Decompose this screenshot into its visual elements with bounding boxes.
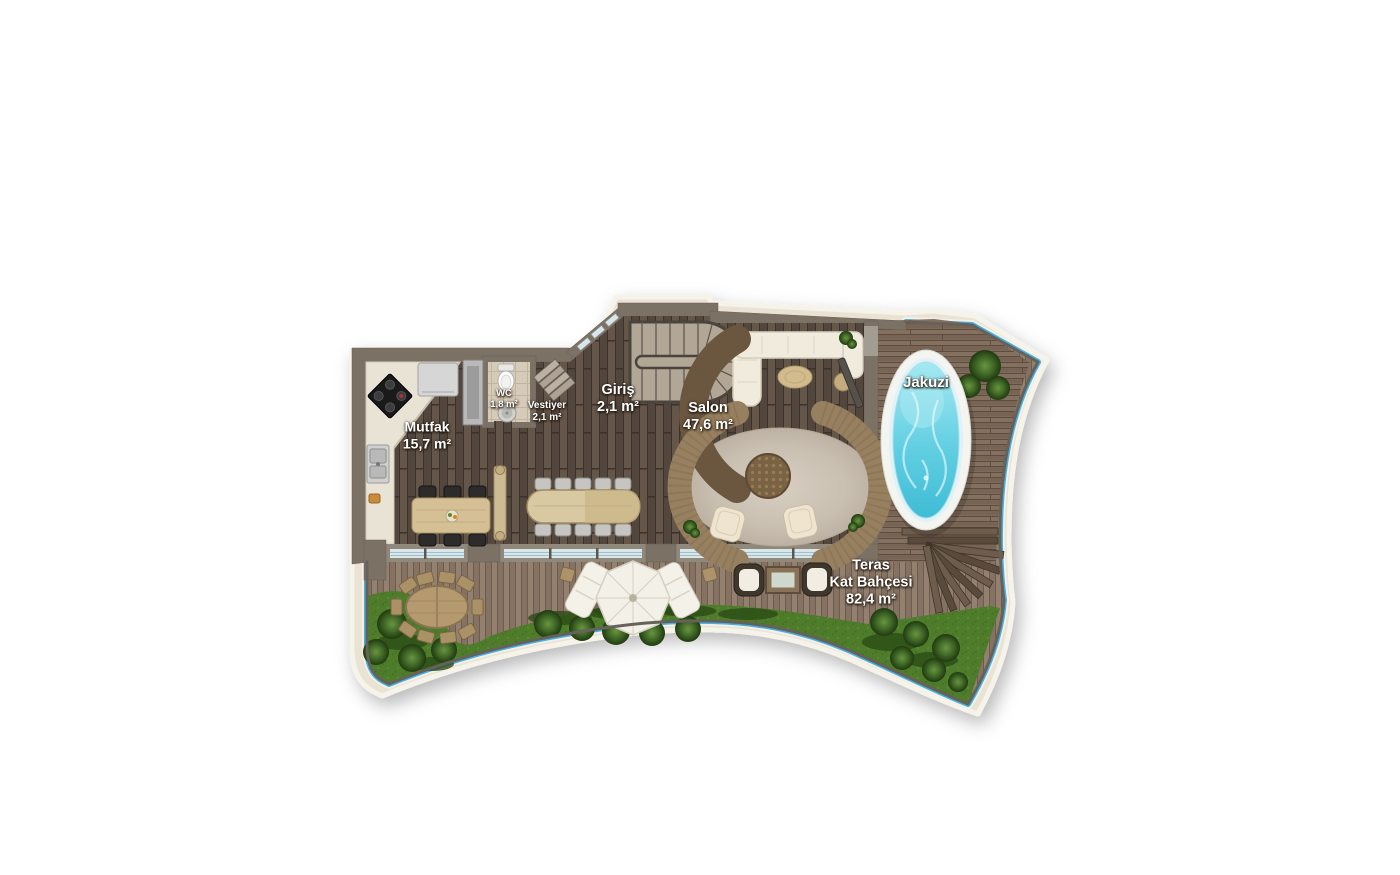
terrace-door-recess	[864, 326, 878, 356]
room-name: Mutfak	[403, 418, 451, 435]
room-label-teras: Teras Kat Bahçesi 82,4 m²	[829, 557, 912, 608]
room-area: 2,1 m²	[528, 412, 566, 424]
room-label-wc: WC 1,8 m²	[490, 388, 517, 410]
kitchen-sink	[367, 445, 389, 483]
room-name: WC	[490, 388, 517, 399]
toilet-tank	[498, 364, 514, 371]
center-ottoman	[746, 454, 790, 498]
wicker-set	[734, 563, 832, 596]
room-label-vestiyer: Vestiyer 2,1 m²	[528, 400, 566, 424]
room-label-jakuzi: Jakuzi	[903, 374, 949, 392]
room-area: 1,8 m²	[490, 399, 517, 410]
room-name-line2: Kat Bahçesi	[829, 574, 912, 591]
salon-armchair-right	[782, 503, 819, 541]
wicker-table	[766, 567, 800, 593]
room-label-salon: Salon 47,6 m²	[683, 400, 733, 434]
room-label-mutfak: Mutfak 15,7 m²	[403, 418, 451, 451]
wicker-chair-right	[802, 563, 832, 596]
room-area: 47,6 m²	[683, 417, 733, 434]
room-name: Jakuzi	[903, 374, 949, 392]
room-name: Vestiyer	[528, 400, 566, 412]
room-area: 15,7 m²	[403, 435, 451, 452]
console-table	[494, 466, 506, 541]
coffee-side-table	[778, 366, 812, 388]
wicker-chair-left	[734, 564, 764, 596]
floor-plan-drawing	[0, 0, 1400, 875]
fridge	[418, 363, 458, 396]
floor-plan-canvas: Mutfak 15,7 m² WC 1,8 m² Vestiyer 2,1 m²…	[0, 0, 1400, 875]
cutting-board	[369, 494, 380, 503]
kitchen-table-set	[412, 486, 490, 546]
room-name: Salon	[683, 400, 733, 417]
room-area: 82,4 m²	[829, 592, 912, 609]
room-name-line1: Teras	[829, 557, 912, 574]
room-label-giris: Giriş 2,1 m²	[597, 382, 639, 416]
room-area: 2,1 m²	[597, 399, 639, 416]
room-name: Giriş	[597, 382, 639, 399]
